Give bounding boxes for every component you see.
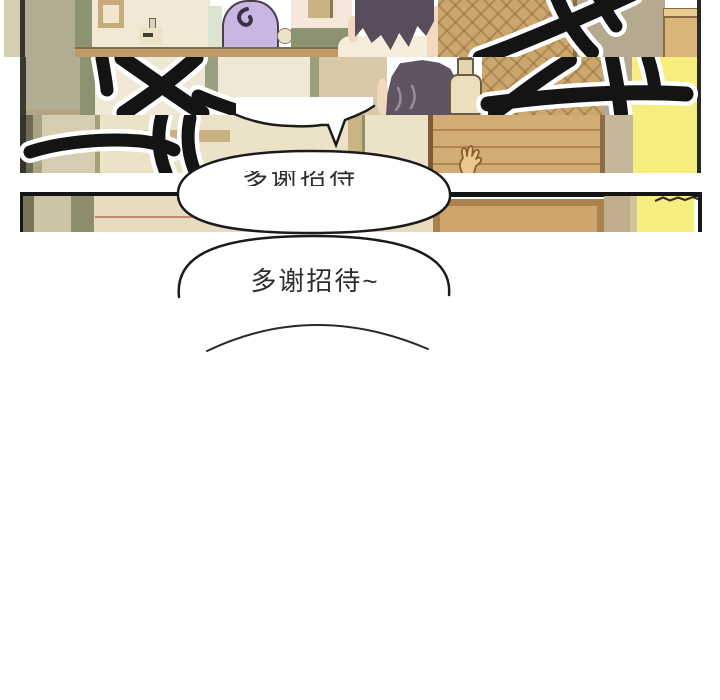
- window-sill: [75, 47, 358, 57]
- panel-right-edge: [697, 57, 701, 115]
- frame-corner-box: [308, 0, 333, 18]
- wall-cream: [94, 196, 433, 232]
- wall-left: [42, 115, 95, 173]
- door-frame-band2: [34, 196, 71, 232]
- door-frame-band: [23, 196, 34, 232]
- wall-cream: [100, 115, 430, 173]
- red-accent-line: [95, 216, 200, 218]
- wooden-box: [663, 16, 699, 57]
- window-frame-right: [310, 57, 319, 115]
- door-edge-left: [428, 115, 433, 173]
- latch-mark: [143, 33, 153, 37]
- window-pane: [95, 57, 205, 115]
- wooden-door-framed: [433, 199, 604, 232]
- bottle-body: [449, 74, 482, 115]
- window-mullion: [205, 57, 218, 115]
- panel-strip-1: [0, 0, 702, 57]
- wooden-door: [428, 115, 605, 173]
- lattice-cabinet: [438, 0, 575, 57]
- panel-border-right: [698, 192, 702, 232]
- yellow-wall: [633, 115, 697, 173]
- character2-hair: [386, 60, 456, 115]
- window-frame-hband: [100, 130, 230, 142]
- wall-right: [602, 57, 632, 115]
- panel-right-edge: [697, 0, 701, 57]
- window-latch: [139, 28, 162, 44]
- frame-line: [630, 196, 637, 232]
- wall-tan-right: [604, 196, 630, 232]
- wall-left: [26, 57, 80, 115]
- door-frame-band2: [33, 115, 42, 173]
- window-inner-frame: [98, 0, 124, 28]
- webtoon-page: 多谢招待 多谢招待~: [0, 0, 720, 700]
- partial-speech-text-clip: 多谢招待: [232, 171, 407, 186]
- door-frame-band3: [71, 196, 94, 232]
- partial-speech-text: 多谢招待: [242, 171, 358, 186]
- window-pane-right: [218, 57, 310, 115]
- main-speech-text: 多谢招待~: [200, 266, 430, 296]
- door-frame-band: [26, 115, 33, 173]
- yellow-wall: [637, 196, 694, 232]
- wall-right: [577, 0, 665, 57]
- character2-skin: [377, 79, 388, 115]
- yellow-wall: [632, 57, 697, 115]
- lattice-cabinet: [482, 57, 602, 115]
- wall-sliver: [4, 0, 20, 57]
- panel-strip-3: [0, 115, 702, 173]
- panel-right-edge: [697, 115, 701, 173]
- window-frame-vbar: [348, 115, 365, 173]
- panel-strip-2: [0, 57, 702, 115]
- speech-bubble-arc: [207, 325, 428, 351]
- wall-left: [25, 0, 75, 57]
- panel-strip-4: [0, 192, 702, 232]
- door-frame-right: [605, 115, 633, 173]
